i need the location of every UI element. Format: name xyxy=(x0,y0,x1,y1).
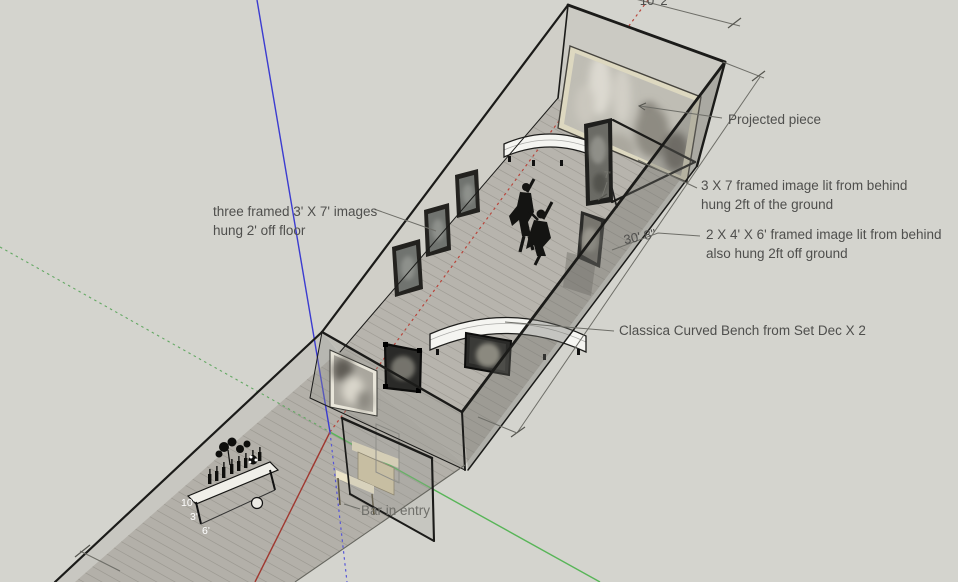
stool xyxy=(252,498,263,509)
bar-in-entry-label: Bar in entry xyxy=(361,503,430,518)
classica-bench-label: Classica Curved Bench from Set Dec X 2 xyxy=(619,323,866,338)
framed-3x7-label-line2: hung 2ft of the ground xyxy=(701,197,833,212)
projected-piece-label: Projected piece xyxy=(728,112,821,127)
top-width-dimension-label: 10' 2" xyxy=(640,0,673,8)
bar-dim-6: 6' xyxy=(202,525,210,537)
model-canvas: 7' xyxy=(0,0,958,582)
frame-height-label: 7' xyxy=(604,170,611,180)
three-framed-label-line1: three framed 3' X 7' images xyxy=(213,204,377,219)
framed-4x6-label-line2: also hung 2ft off ground xyxy=(706,246,848,261)
framed-4x6-label-line1: 2 X 4' X 6' framed image lit from behind xyxy=(706,227,942,242)
framed-3x7-label-line1: 3 X 7 framed image lit from behind xyxy=(701,178,907,193)
leaning-frame-1 xyxy=(392,239,423,297)
bar-dim-10: 10' xyxy=(181,497,195,509)
sketchup-model-viewport[interactable]: 7' xyxy=(0,0,958,582)
bar-dim-3: 3' xyxy=(190,511,198,523)
frame-3x7 xyxy=(584,118,617,208)
three-framed-label-line2: hung 2' off floor xyxy=(213,223,306,238)
